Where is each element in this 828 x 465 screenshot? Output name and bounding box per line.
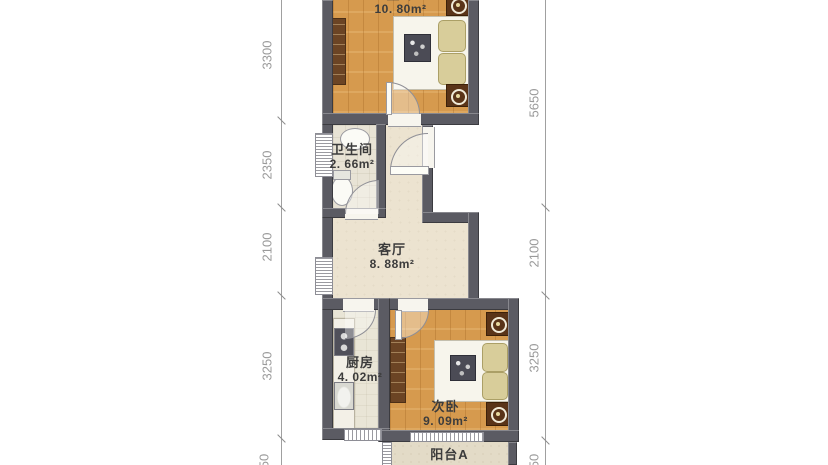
pillow-icon xyxy=(482,372,508,400)
room-name: 次卧 xyxy=(398,399,493,414)
nightstand-icon xyxy=(446,84,470,107)
dimension-label: 50 xyxy=(257,454,272,465)
pillow-icon xyxy=(482,343,508,372)
wardrobe-icon xyxy=(332,18,346,85)
dimension-label: 3300 xyxy=(260,41,275,70)
room-label-bathroom: 卫生间 2. 66m² xyxy=(322,142,382,172)
second-bedroom-door-leaf-icon xyxy=(395,310,402,340)
room-label-second-bedroom: 次卧 9. 09m² xyxy=(398,399,493,429)
room-area: 10. 80m² xyxy=(333,2,468,17)
kitchen-sink-icon xyxy=(334,382,354,410)
second-bedroom-window-icon xyxy=(410,432,484,442)
master-door-opening xyxy=(388,113,421,127)
pillow-icon xyxy=(438,53,466,85)
dimension-line-left xyxy=(281,0,282,465)
entry-door-leaf-icon xyxy=(390,166,429,175)
room-label-living: 客厅 8. 88m² xyxy=(340,242,444,272)
dimension-label: 50 xyxy=(527,454,542,465)
dimension-label: 2350 xyxy=(260,151,275,180)
room-label-kitchen: 厨房 4. 02m² xyxy=(328,355,392,385)
blanket-icon xyxy=(404,34,431,62)
room-area: 4. 02m² xyxy=(328,370,392,385)
room-name: 厨房 xyxy=(328,355,392,370)
dimension-label: 5650 xyxy=(527,89,542,118)
dimension-label: 3250 xyxy=(260,352,275,381)
room-area: 8. 88m² xyxy=(340,257,444,272)
room-area: 9. 09m² xyxy=(398,414,493,429)
room-label-master: 主卧 10. 80m² xyxy=(333,0,468,17)
wall-balcony-right xyxy=(508,442,517,465)
wall-master-right xyxy=(468,0,479,125)
room-name: 卫生间 xyxy=(322,142,382,157)
living-room-window-icon xyxy=(315,257,333,295)
room-name: 客厅 xyxy=(340,242,444,257)
dimension-line-right xyxy=(545,0,546,465)
pillow-icon xyxy=(438,20,466,52)
floor-plan-canvas: 主卧 10. 80m² 卫生间 2. 66m² 客厅 8. 88m² 厨房 4.… xyxy=(0,0,828,465)
blanket-icon xyxy=(450,355,476,381)
dimension-label: 3250 xyxy=(527,344,542,373)
nightstand-icon xyxy=(486,312,510,336)
dimension-label: 2100 xyxy=(527,239,542,268)
room-area: 2. 66m² xyxy=(322,157,382,172)
wall-living-right xyxy=(468,212,479,307)
room-name: 阳台A xyxy=(391,447,508,462)
room-label-balcony: 阳台A xyxy=(391,447,508,462)
dimension-label: 2100 xyxy=(260,233,275,262)
master-door-leaf-icon xyxy=(386,82,392,115)
wall-second-bedroom-right xyxy=(508,298,519,442)
wardrobe-icon xyxy=(390,337,406,403)
kitchen-window-icon xyxy=(344,429,382,441)
